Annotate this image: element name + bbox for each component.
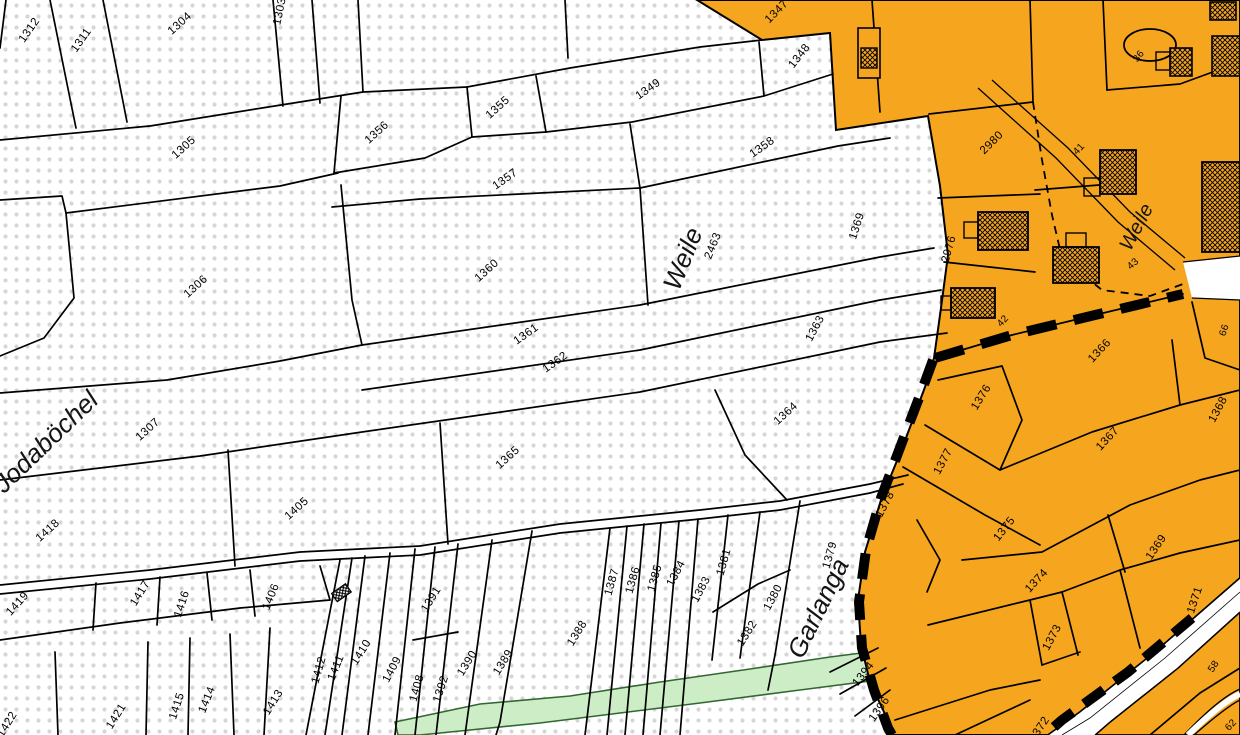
building	[1202, 162, 1240, 252]
building	[978, 212, 1028, 250]
building	[1100, 150, 1136, 194]
building	[1212, 36, 1240, 76]
building	[951, 288, 995, 318]
road-gap-topright	[1183, 256, 1240, 300]
building	[861, 48, 877, 68]
cadastral-map-canvas[interactable]: 1312131113041303130513061356135513571349…	[0, 0, 1240, 735]
building	[1170, 48, 1192, 76]
building	[1210, 2, 1236, 20]
building	[1053, 247, 1099, 283]
cadastral-map: 1312131113041303130513061356135513571349…	[0, 0, 1240, 735]
